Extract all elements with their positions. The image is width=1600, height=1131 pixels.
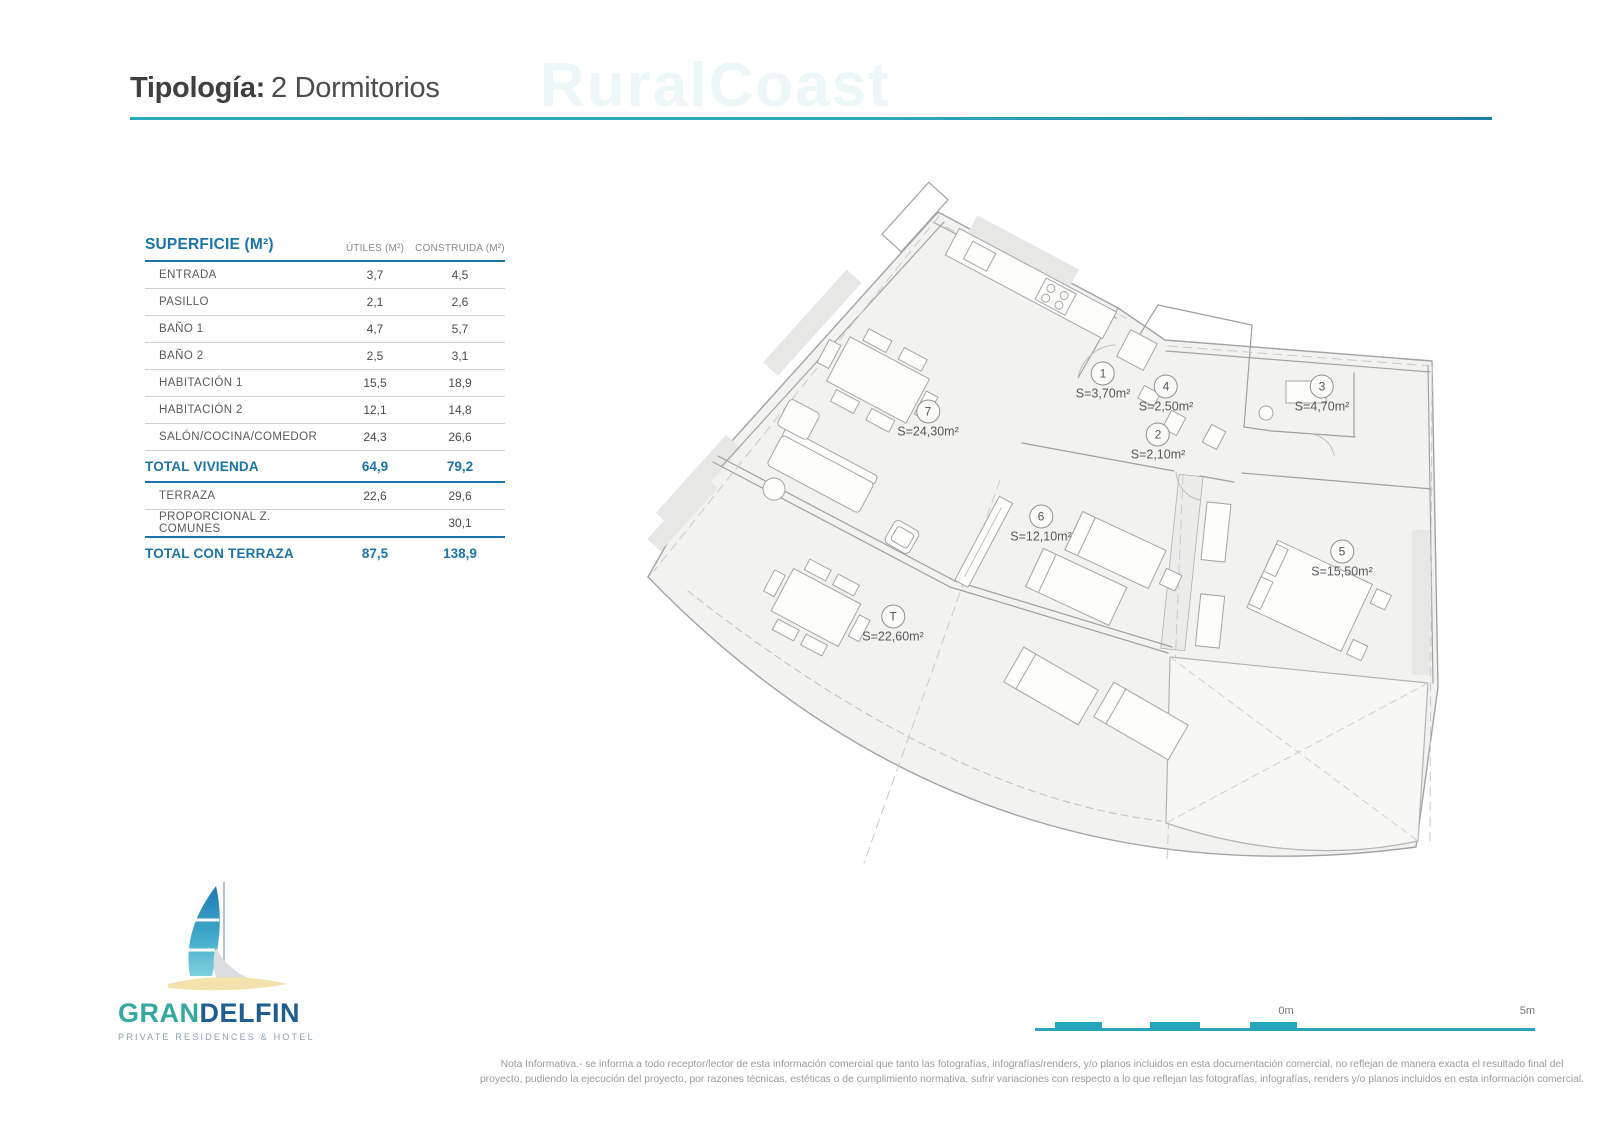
table-row: ENTRADA 3,7 4,5: [145, 262, 505, 289]
surface-table: SUPERFICIE (M²) ÚTILES (M²) CONSTRUIDA (…: [145, 236, 505, 568]
scale-label-0m: 0m: [1271, 1005, 1301, 1017]
floor-plan: 1 S=3,70m² 4 S=2,50m² 3 S=4,70m² 2 S=2,1…: [610, 175, 1470, 865]
room-label-pasillo: 2 S=2,10m²: [1131, 423, 1186, 462]
room-label-bano1: 4 S=2,50m²: [1139, 375, 1194, 414]
scale-block: [1150, 1022, 1200, 1031]
room-label-bano2: 3 S=4,70m²: [1295, 375, 1350, 414]
footer-line-2: proyecto, pudiendo la ejecución del proy…: [457, 1073, 1600, 1088]
scale-label-5m: 5m: [1520, 1005, 1535, 1017]
room-label-salon: 7 S=24,30m²: [897, 400, 959, 439]
logo-name: GRANDELFIN: [118, 998, 333, 1029]
room-label-entrada: 1 S=3,70m²: [1076, 362, 1131, 401]
column-header-construida: CONSTRUIDA (M²): [415, 243, 505, 254]
table-row: PROPORCIONAL Z. COMUNES 30,1: [145, 510, 505, 538]
watermark: RuralCoast: [540, 50, 891, 121]
scale-block: [1250, 1022, 1297, 1031]
grandelfin-logo: GRANDELFIN PRIVATE RESIDENCES & HOTEL: [118, 878, 333, 1042]
table-row-total-vivienda: TOTAL VIVIENDA 64,9 79,2: [145, 451, 505, 483]
table-row: BAÑO 1 4,7 5,7: [145, 316, 505, 343]
table-row: HABITACIÓN 1 15,5 18,9: [145, 370, 505, 397]
footer-note: Nota Informativa.- se informa a todo rec…: [457, 1058, 1600, 1087]
column-header-utiles: ÚTILES (M²): [335, 243, 415, 254]
table-row: SALÓN/COCINA/COMEDOR 24,3 26,6: [145, 424, 505, 451]
logo-tagline: PRIVATE RESIDENCES & HOTEL: [118, 1032, 333, 1042]
scale-bar: 0m 5m: [1035, 1005, 1535, 1037]
table-row: TERRAZA 22,6 29,6: [145, 483, 505, 510]
brochure-page: Tipología:2 Dormitorios RuralCoast SUPER…: [0, 0, 1600, 1131]
room-label-terraza: T S=22,60m²: [862, 605, 924, 644]
table-row: PASILLO 2,1 2,6: [145, 289, 505, 316]
table-row: BAÑO 2 2,5 3,1: [145, 343, 505, 370]
sail-logo-icon: [146, 878, 306, 996]
page-title: Tipología:2 Dormitorios: [130, 72, 440, 105]
title-label: Tipología:: [130, 72, 265, 104]
table-row-total-terraza: TOTAL CON TERRAZA 87,5 138,9: [145, 538, 505, 568]
table-header-row: SUPERFICIE (M²) ÚTILES (M²) CONSTRUIDA (…: [145, 236, 505, 262]
scale-block: [1055, 1022, 1102, 1031]
room-label-habitacion2: 6 S=12,10m²: [1010, 505, 1072, 544]
room-label-habitacion1: 5 S=15,50m²: [1311, 540, 1373, 579]
table-row: HABITACIÓN 2 12,1 14,8: [145, 397, 505, 424]
footer-line-1: Nota Informativa.- se informa a todo rec…: [457, 1058, 1600, 1073]
table-title: SUPERFICIE (M²): [145, 236, 335, 254]
title-value: 2 Dormitorios: [271, 72, 440, 104]
